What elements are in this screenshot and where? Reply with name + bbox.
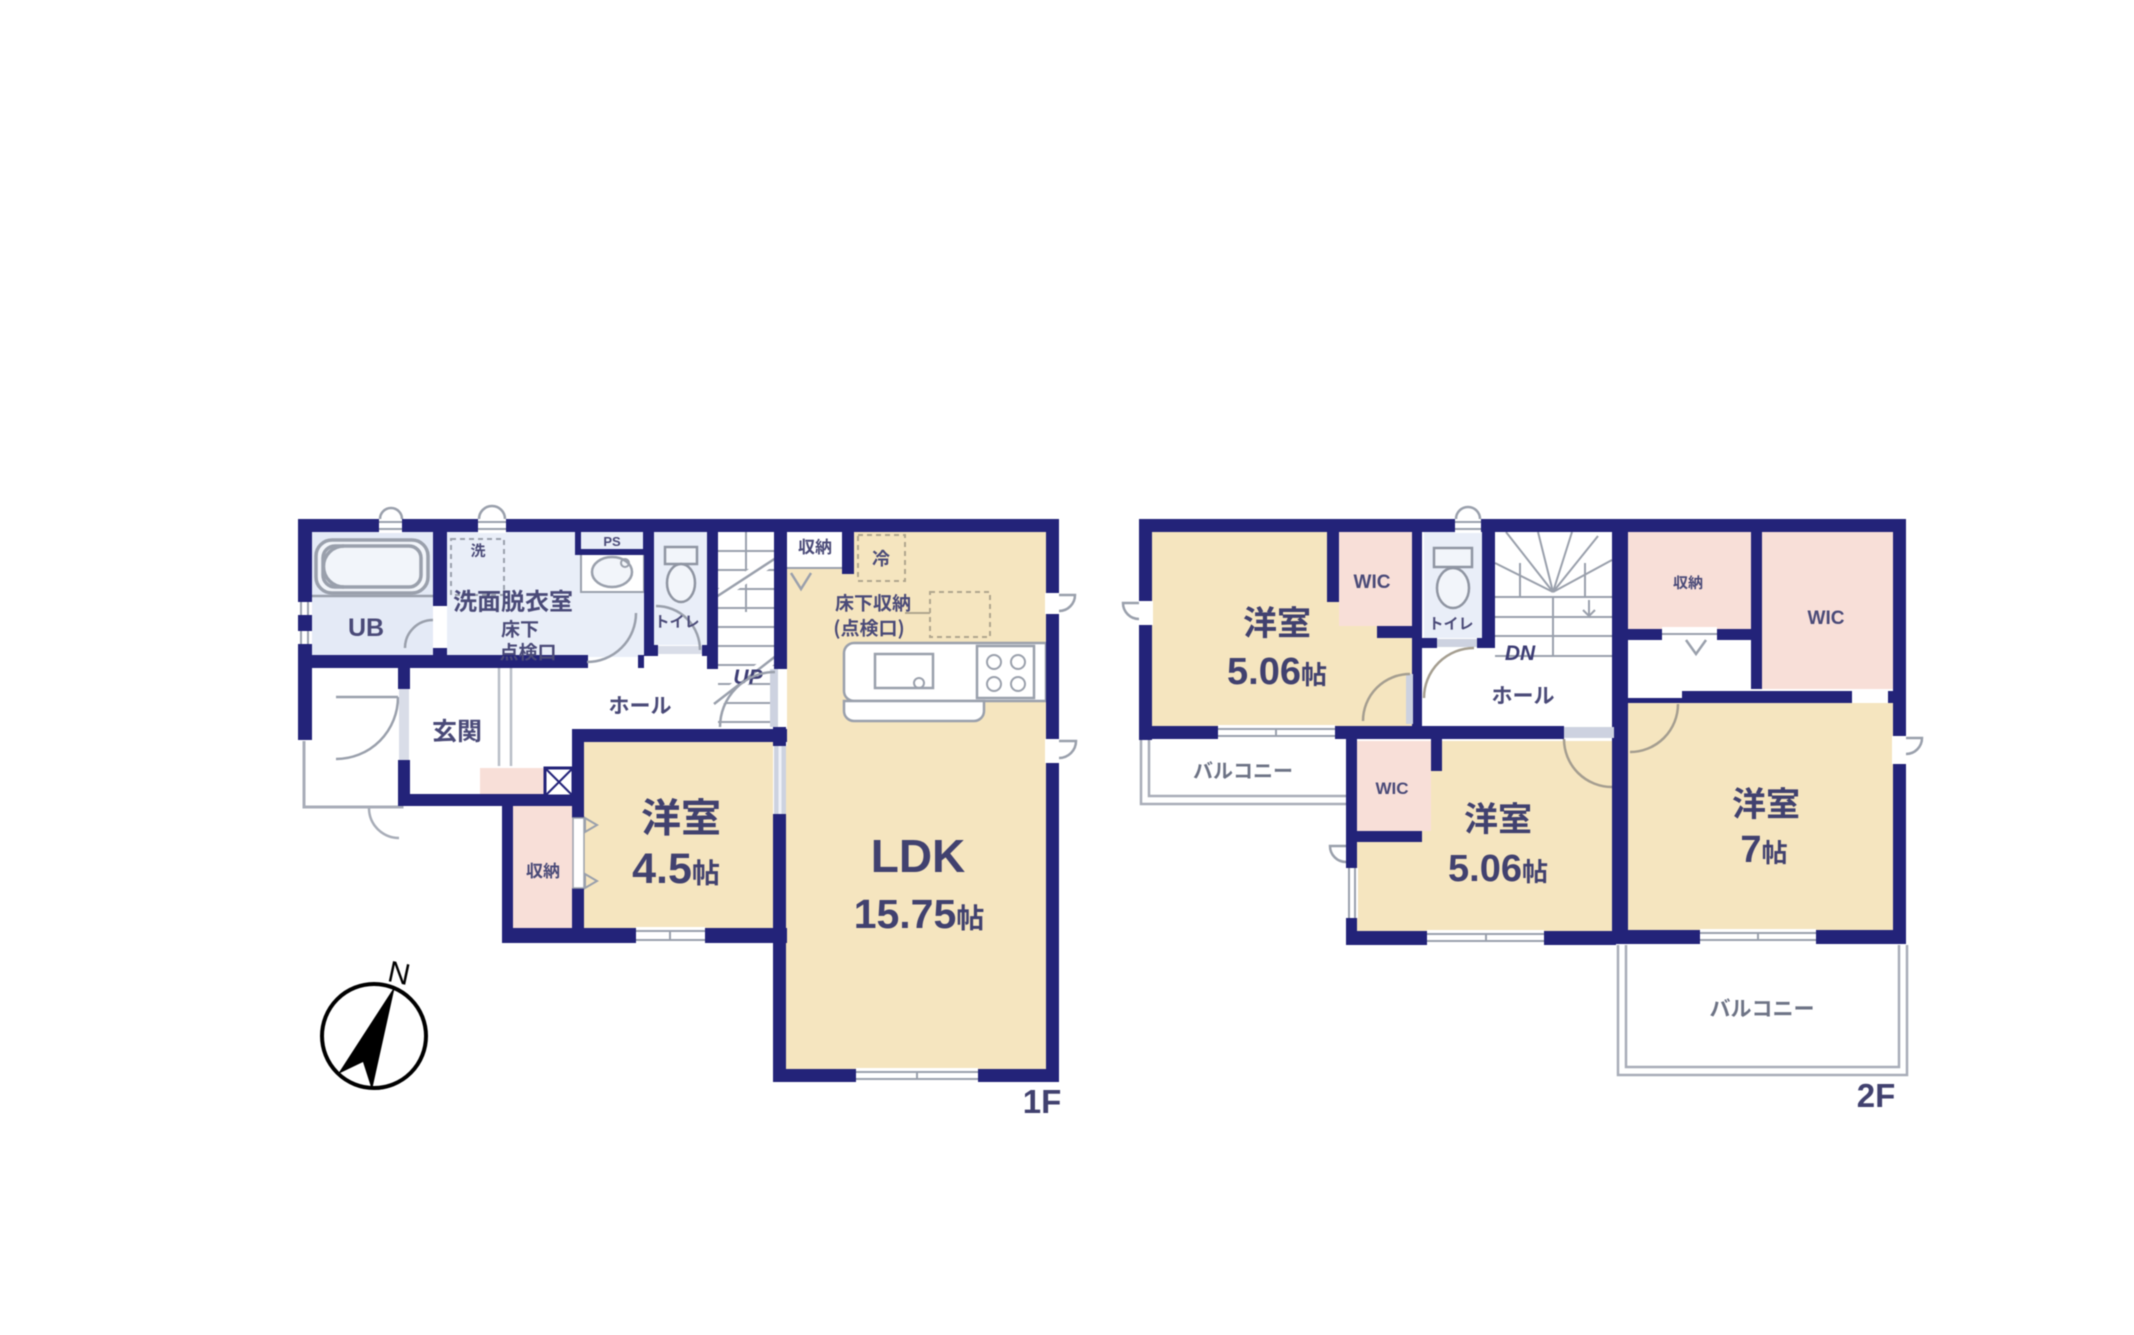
svg-text:1F: 1F [1023, 1083, 1062, 1120]
svg-text:WIC: WIC [1375, 779, 1408, 798]
svg-text:LDK: LDK [871, 830, 966, 882]
svg-text:5.06: 5.06 [1227, 651, 1301, 693]
svg-text:15.75: 15.75 [854, 891, 957, 937]
svg-text:WIC: WIC [1354, 572, 1391, 593]
svg-text:UB: UB [348, 614, 384, 642]
svg-text:WIC: WIC [1808, 608, 1845, 629]
svg-text:PS: PS [603, 534, 621, 549]
svg-text:DN: DN [1505, 642, 1536, 665]
svg-text:2F: 2F [1857, 1077, 1896, 1114]
svg-text:4.5: 4.5 [632, 845, 692, 893]
svg-text:5.06: 5.06 [1448, 848, 1522, 890]
svg-text:7: 7 [1740, 829, 1761, 871]
